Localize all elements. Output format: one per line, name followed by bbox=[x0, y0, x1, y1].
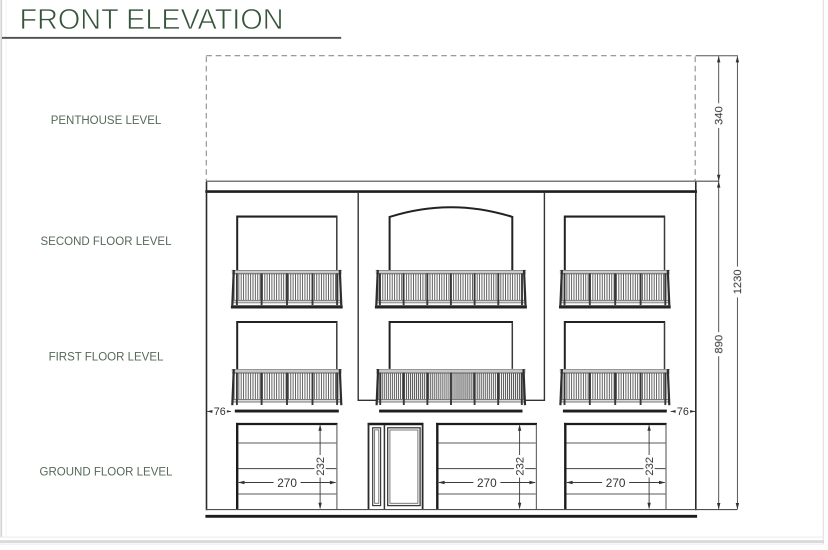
svg-text:232: 232 bbox=[644, 457, 656, 476]
svg-text:232: 232 bbox=[515, 457, 527, 476]
svg-text:890: 890 bbox=[713, 335, 725, 354]
svg-text:270: 270 bbox=[477, 476, 497, 490]
svg-text:GROUND FLOOR LEVEL: GROUND FLOOR LEVEL bbox=[40, 467, 174, 479]
svg-text:1230: 1230 bbox=[732, 269, 744, 294]
svg-text:FIRST FLOOR LEVEL: FIRST FLOOR LEVEL bbox=[49, 352, 164, 364]
svg-text:FRONT ELEVATION: FRONT ELEVATION bbox=[20, 4, 284, 36]
svg-text:76: 76 bbox=[214, 406, 226, 418]
svg-text:270: 270 bbox=[606, 476, 626, 490]
svg-text:340: 340 bbox=[713, 106, 725, 125]
svg-text:76: 76 bbox=[677, 406, 689, 418]
svg-text:232: 232 bbox=[315, 457, 327, 476]
svg-text:PENTHOUSE LEVEL: PENTHOUSE LEVEL bbox=[51, 115, 162, 127]
svg-text:270: 270 bbox=[277, 476, 297, 490]
svg-text:SECOND FLOOR LEVEL: SECOND FLOOR LEVEL bbox=[40, 236, 172, 248]
